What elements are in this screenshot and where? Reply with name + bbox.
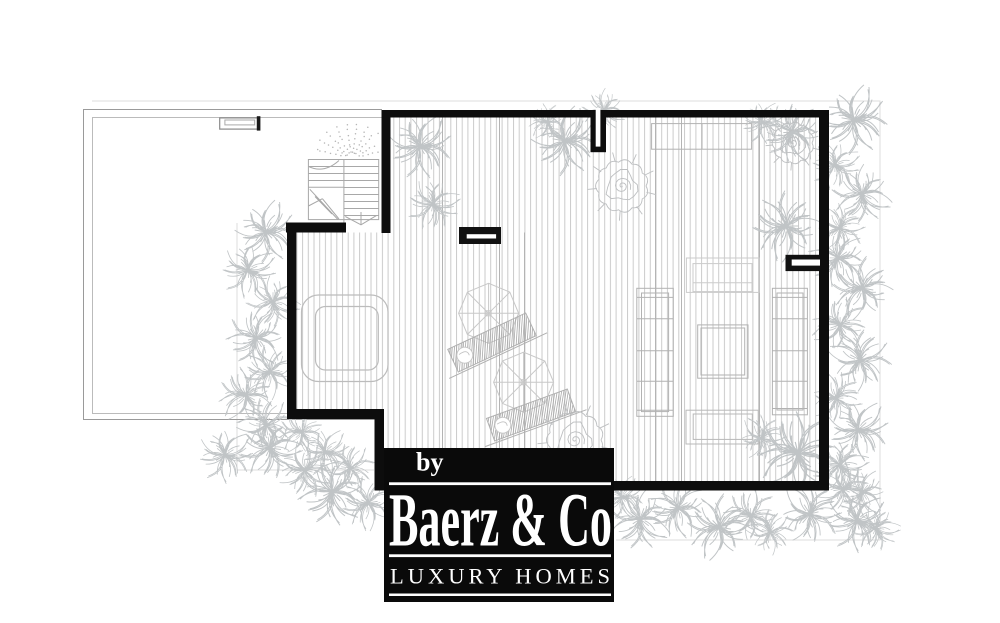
svg-text:by: by (416, 448, 443, 477)
svg-text:Baerz & Co: Baerz & Co (389, 479, 612, 563)
